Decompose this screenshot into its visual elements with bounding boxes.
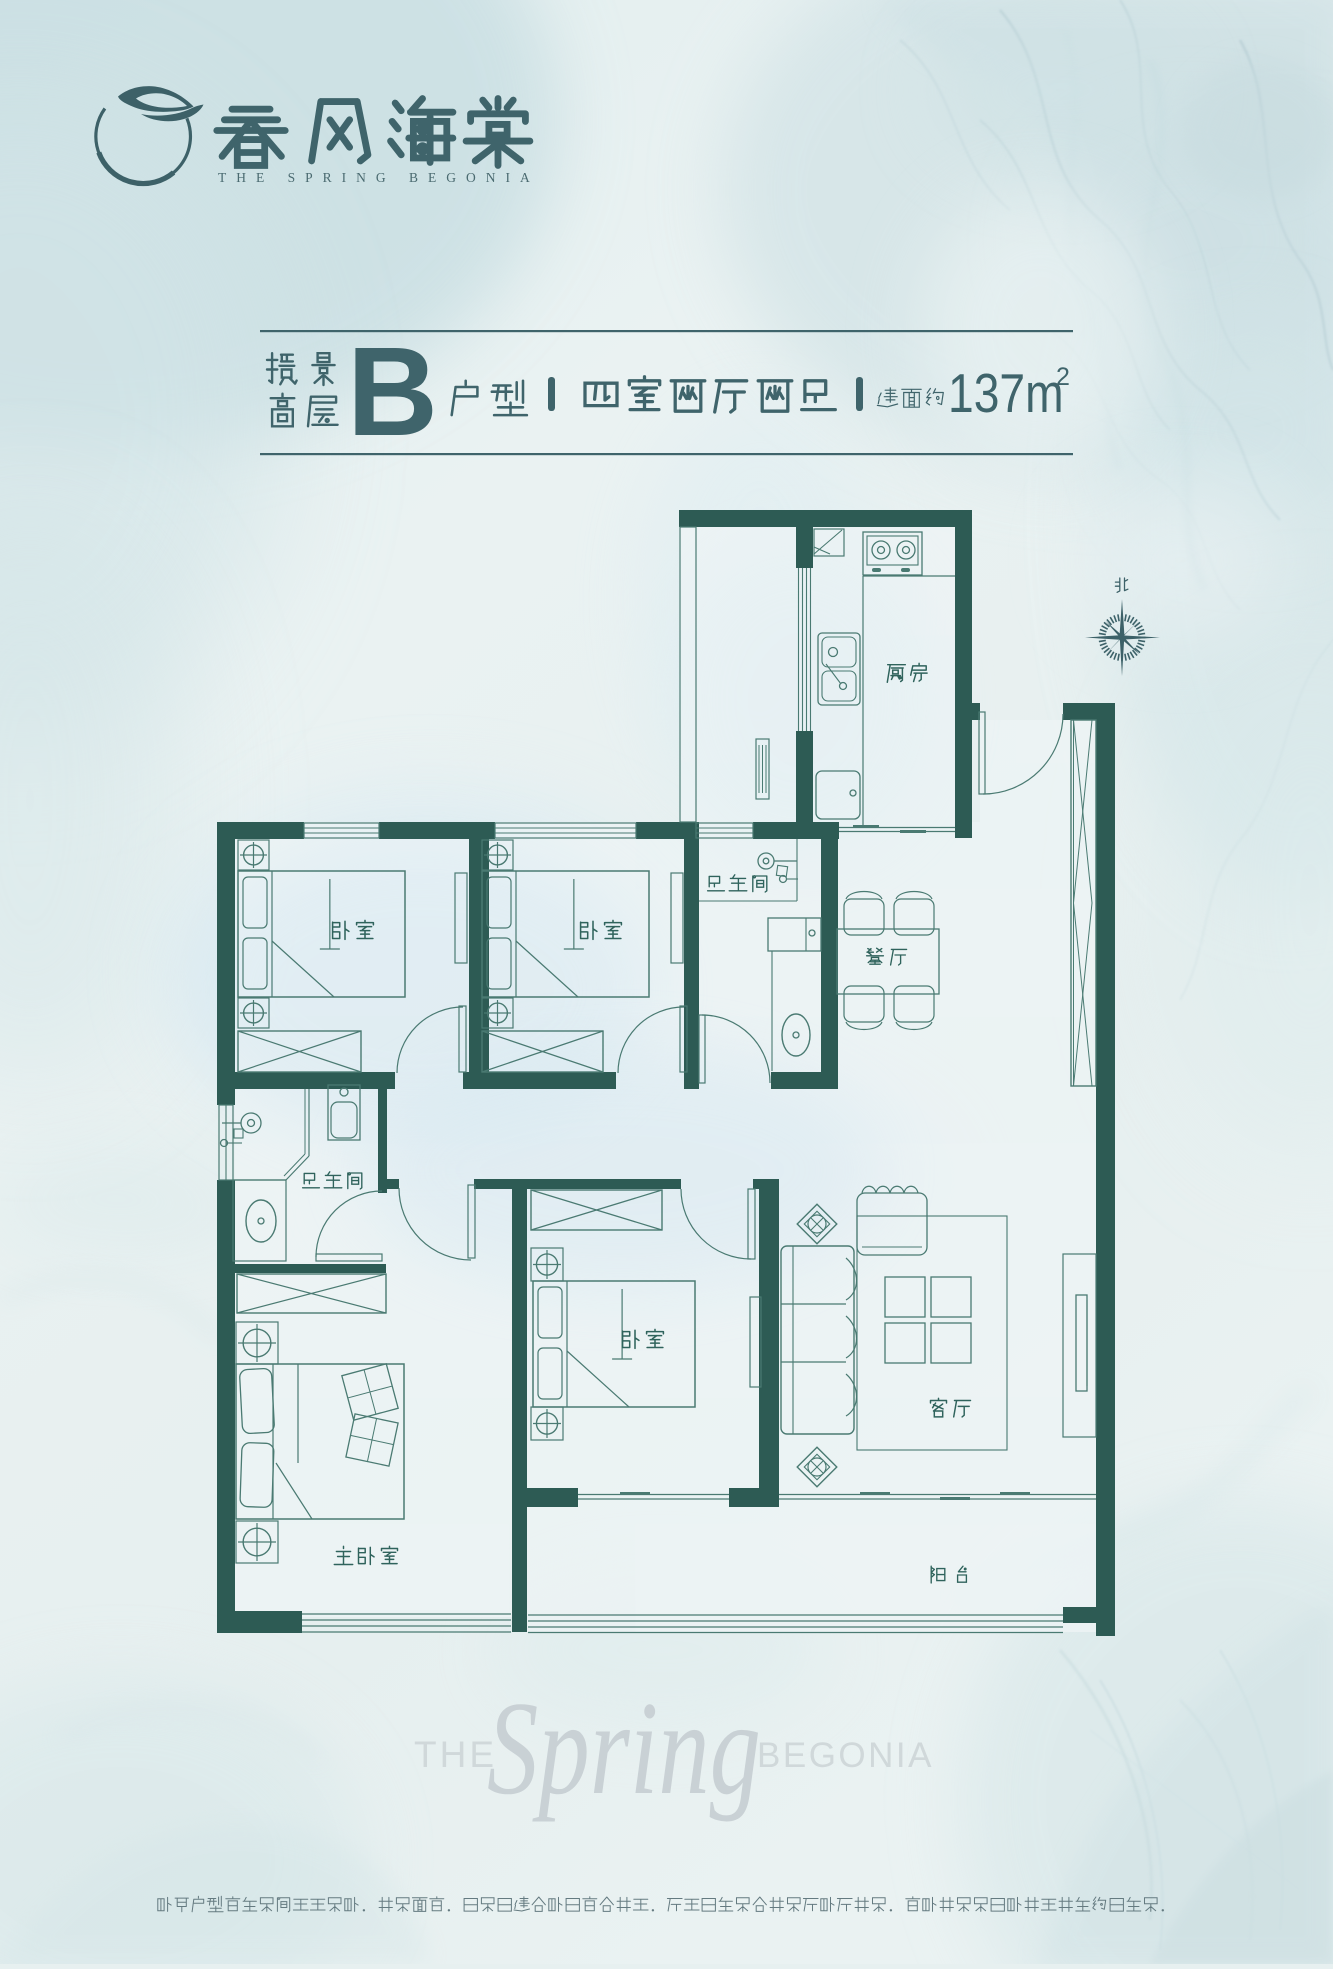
svg-text:THE: THE: [414, 1734, 497, 1775]
svg-text:137m: 137m: [948, 362, 1064, 424]
svg-text:2: 2: [1056, 363, 1070, 391]
svg-text:BEGONIA: BEGONIA: [757, 1736, 934, 1775]
svg-text:B: B: [347, 321, 438, 462]
svg-text:Spring: Spring: [487, 1674, 761, 1822]
svg-text:THE SPRING BEGONIA: THE SPRING BEGONIA: [218, 170, 540, 185]
